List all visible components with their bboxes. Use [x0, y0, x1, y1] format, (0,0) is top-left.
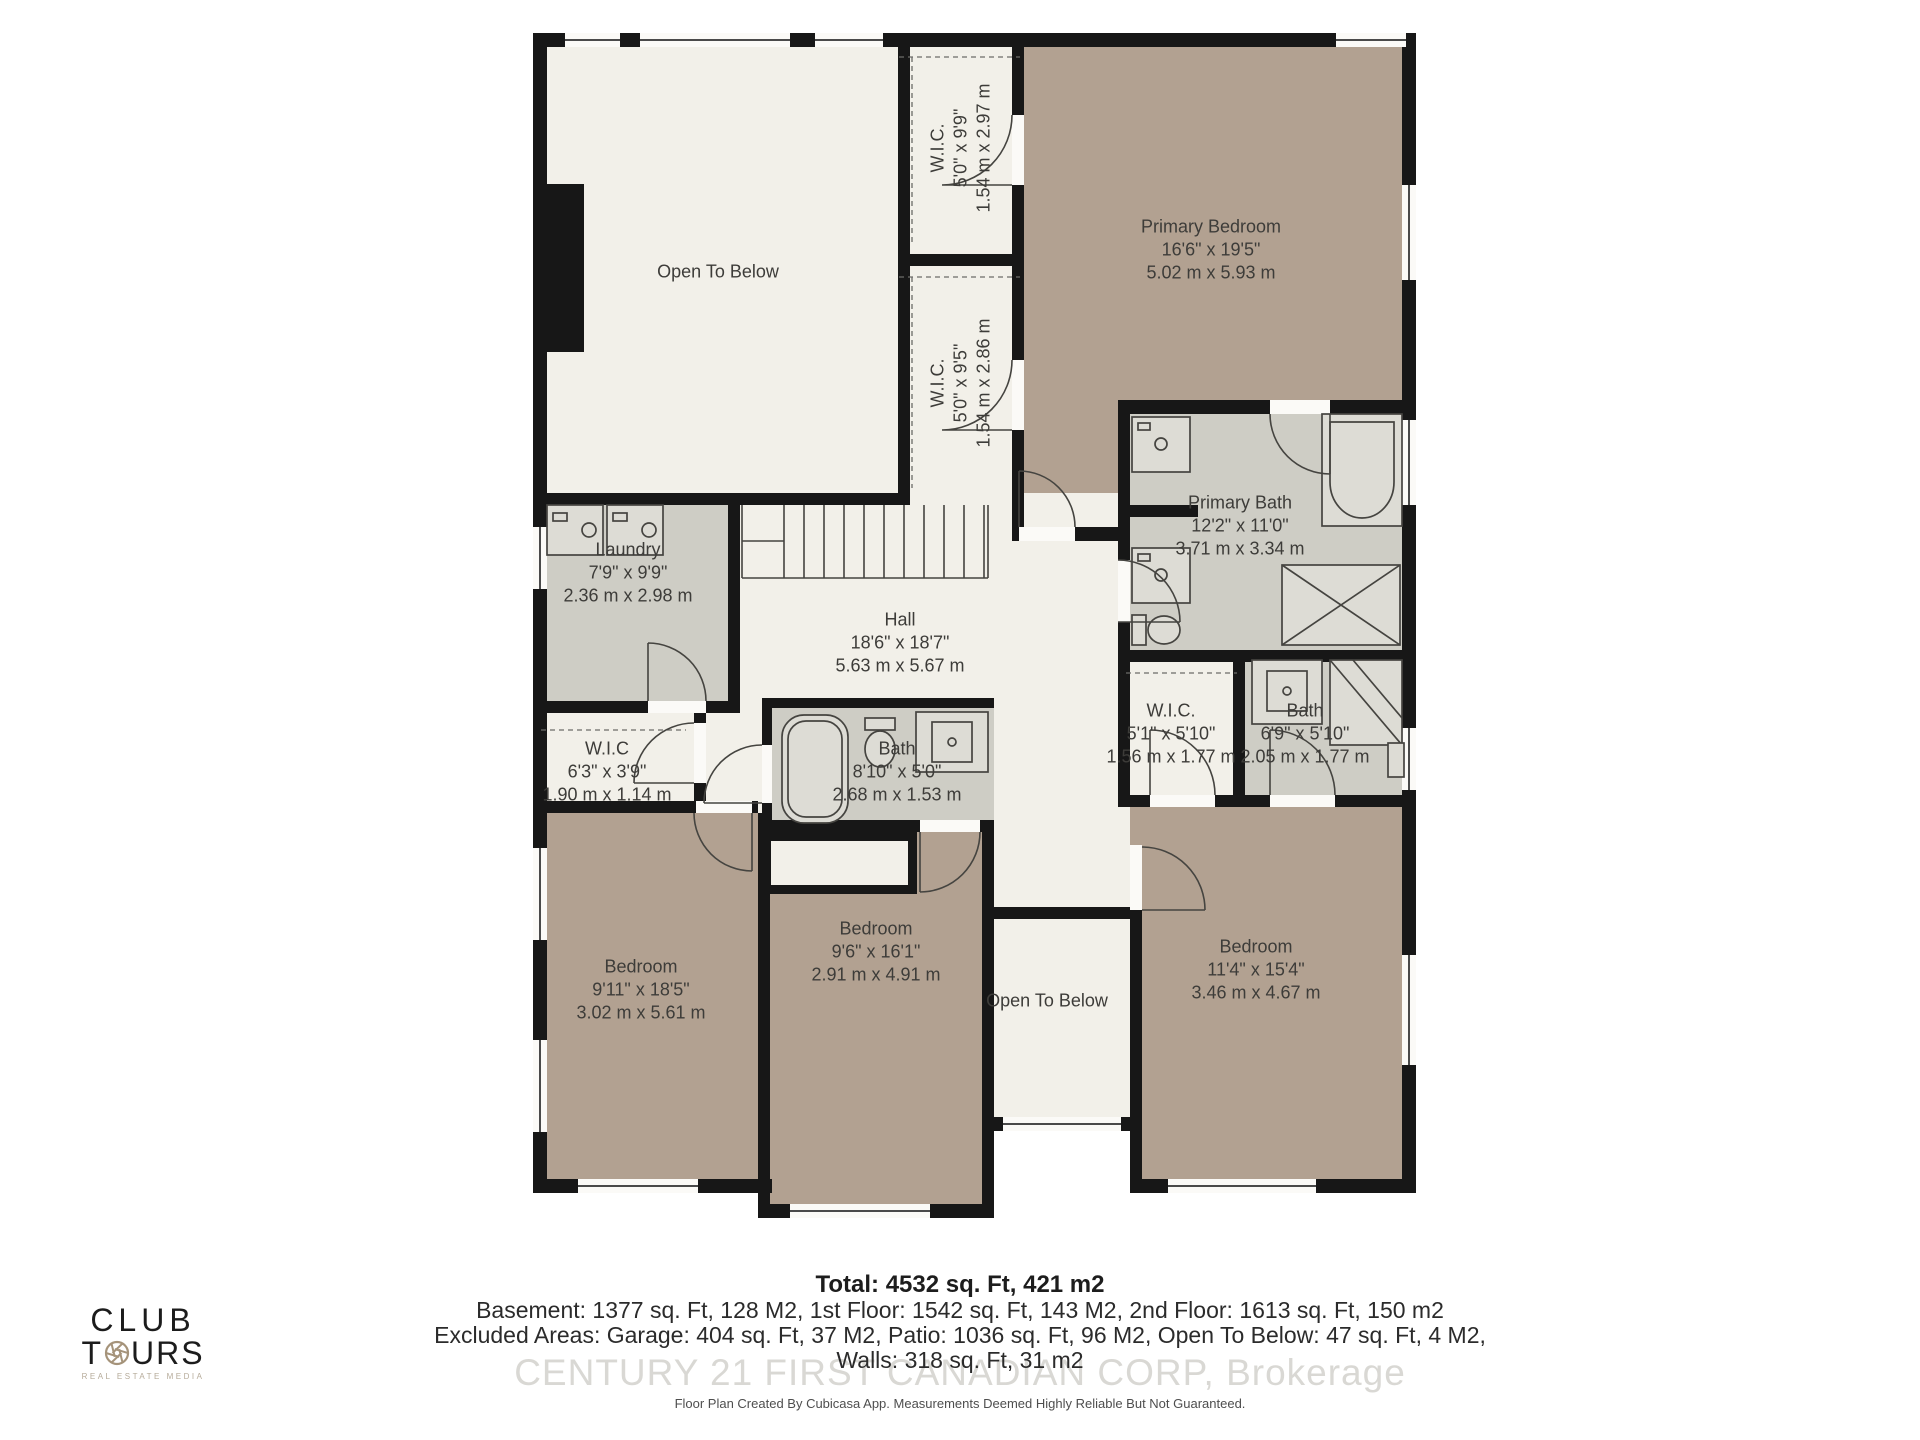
room-dim-metric: 1.90 m x 1.14 m — [542, 784, 671, 807]
room-name: Open To Below — [986, 990, 1108, 1013]
footer-excluded: Excluded Areas: Garage: 404 sq. Ft, 37 M… — [0, 1322, 1920, 1349]
room-label-bath-right: Bath 6'9" x 5'10" 2.05 m x 1.77 m — [1240, 700, 1369, 769]
room-dim-metric: 3.02 m x 5.61 m — [576, 1002, 705, 1025]
room-name: Primary Bath — [1175, 492, 1304, 515]
room-name: Bedroom — [1191, 936, 1320, 959]
room-label-primary-bedroom: Primary Bedroom 16'6" x 19'5" 5.02 m x 5… — [1141, 216, 1281, 285]
logo-line2-pre: T — [81, 1336, 103, 1370]
room-dim-metric: 1.56 m x 1.77 m — [1106, 746, 1235, 769]
stairs — [742, 505, 988, 578]
room-dim-imperial: 6'3" x 3'9" — [542, 761, 671, 784]
room-name: W.I.C — [542, 738, 671, 761]
room-name: W.I.C. — [927, 318, 950, 447]
room-dim-metric: 1.54 m x 2.97 m — [973, 83, 996, 212]
room-name: W.I.C. — [1106, 700, 1235, 723]
room-dim-imperial: 5'0" x 9'9" — [950, 83, 973, 212]
room-label-wic-top1: W.I.C. 5'0" x 9'9" 1.54 m x 2.97 m — [927, 83, 996, 212]
room-dim-imperial: 6'9" x 5'10" — [1240, 723, 1369, 746]
floor-plan: Open To Below W.I.C. 5'0" x 9'9" 1.54 m … — [533, 33, 1416, 1218]
room-label-wic-right: W.I.C. 5'1" x 5'10" 1.56 m x 1.77 m — [1106, 700, 1235, 769]
room-label-bedroom-center: Bedroom 9'6" x 16'1" 2.91 m x 4.91 m — [811, 918, 940, 987]
room-label-open-to-below-top: Open To Below — [657, 261, 779, 284]
club-tours-logo: CLUB T URS REAL ESTATE MEDIA — [78, 1304, 208, 1381]
room-dim-imperial: 12'2" x 11'0" — [1175, 515, 1304, 538]
room-dim-imperial: 5'1" x 5'10" — [1106, 723, 1235, 746]
room-dim-metric: 5.02 m x 5.93 m — [1141, 262, 1281, 285]
room-label-hall: Hall 18'6" x 18'7" 5.63 m x 5.67 m — [835, 609, 964, 678]
room-name: Laundry — [563, 539, 692, 562]
footer-total: Total: 4532 sq. Ft, 421 m2 — [0, 1271, 1920, 1299]
room-name: Open To Below — [657, 261, 779, 284]
room-label-wic-left: W.I.C 6'3" x 3'9" 1.90 m x 1.14 m — [542, 738, 671, 807]
room-label-bath-center: Bath 8'10" x 5'0" 2.68 m x 1.53 m — [832, 738, 961, 807]
room-name: Bath — [832, 738, 961, 761]
room-dim-imperial: 16'6" x 19'5" — [1141, 239, 1281, 262]
room-dim-imperial: 9'6" x 16'1" — [811, 941, 940, 964]
room-name: W.I.C. — [927, 83, 950, 212]
footer-floors: Basement: 1377 sq. Ft, 128 M2, 1st Floor… — [0, 1297, 1920, 1324]
room-dim-metric: 5.63 m x 5.67 m — [835, 655, 964, 678]
room-dim-metric: 1.54 m x 2.86 m — [973, 318, 996, 447]
room-dim-metric: 3.46 m x 4.67 m — [1191, 982, 1320, 1005]
room-label-wic-top2: W.I.C. 5'0" x 9'5" 1.54 m x 2.86 m — [927, 318, 996, 447]
room-label-bedroom-right: Bedroom 11'4" x 15'4" 3.46 m x 4.67 m — [1191, 936, 1320, 1005]
room-dim-imperial: 18'6" x 18'7" — [835, 632, 964, 655]
room-dim-imperial: 8'10" x 5'0" — [832, 761, 961, 784]
logo-line1: CLUB — [78, 1304, 208, 1336]
room-dim-metric: 2.05 m x 1.77 m — [1240, 746, 1369, 769]
room-dim-metric: 3.71 m x 3.34 m — [1175, 538, 1304, 561]
room-dim-imperial: 7'9" x 9'9" — [563, 562, 692, 585]
room-dim-metric: 2.68 m x 1.53 m — [832, 784, 961, 807]
room-dim-imperial: 9'11" x 18'5" — [576, 979, 705, 1002]
room-label-laundry: Laundry 7'9" x 9'9" 2.36 m x 2.98 m — [563, 539, 692, 608]
fineprint: Floor Plan Created By Cubicasa App. Meas… — [0, 1396, 1920, 1411]
room-dim-metric: 2.91 m x 4.91 m — [811, 964, 940, 987]
logo-tagline: REAL ESTATE MEDIA — [78, 1372, 208, 1381]
room-label-primary-bath: Primary Bath 12'2" x 11'0" 3.71 m x 3.34… — [1175, 492, 1304, 561]
room-label-open-to-below-bottom: Open To Below — [986, 990, 1108, 1013]
room-name: Bedroom — [576, 956, 705, 979]
room-name: Bath — [1240, 700, 1369, 723]
room-dim-imperial: 5'0" x 9'5" — [950, 318, 973, 447]
logo-line2: T URS — [78, 1336, 208, 1370]
footer-walls: Walls: 318 sq. Ft, 31 m2 — [0, 1347, 1920, 1374]
room-name: Primary Bedroom — [1141, 216, 1281, 239]
room-name: Hall — [835, 609, 964, 632]
room-label-bedroom-left: Bedroom 9'11" x 18'5" 3.02 m x 5.61 m — [576, 956, 705, 1025]
room-name: Bedroom — [811, 918, 940, 941]
logo-line2-post: URS — [131, 1336, 205, 1370]
aperture-icon — [104, 1340, 130, 1366]
room-dim-imperial: 11'4" x 15'4" — [1191, 959, 1320, 982]
room-dim-metric: 2.36 m x 2.98 m — [563, 585, 692, 608]
